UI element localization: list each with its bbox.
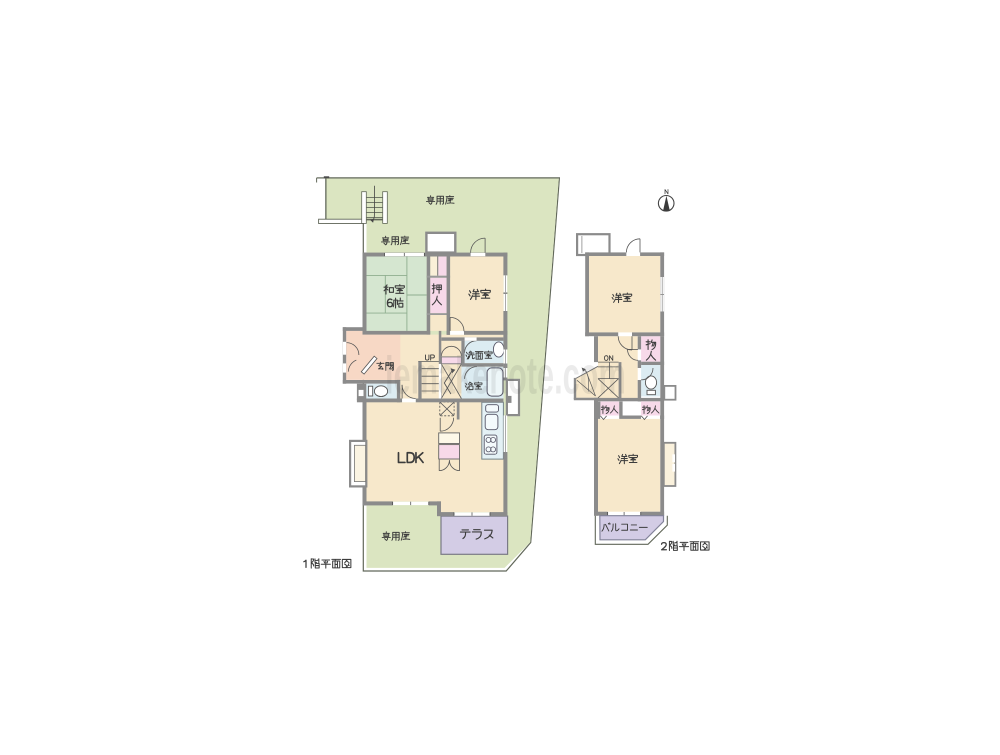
svg-text:iemakenote.com: iemakenote.com (385, 347, 626, 406)
